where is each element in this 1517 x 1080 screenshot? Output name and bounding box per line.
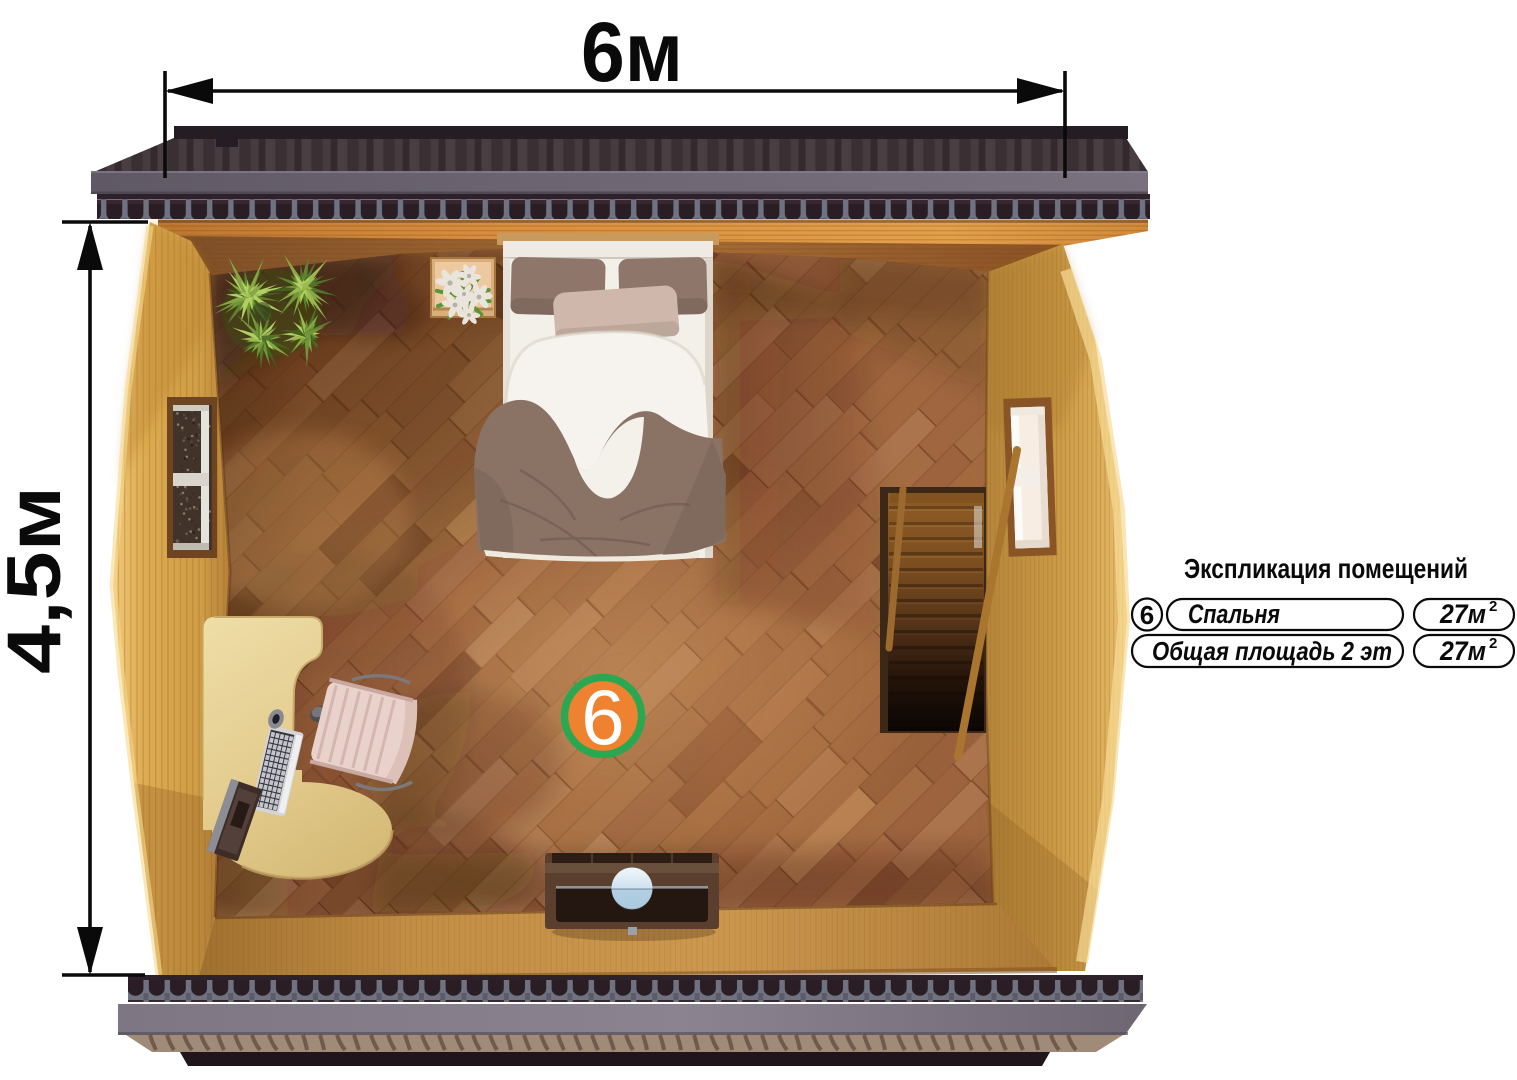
svg-text:Общая площадь 2 эт: Общая площадь 2 эт: [1152, 636, 1392, 666]
svg-text:27м: 27м: [1439, 636, 1486, 666]
svg-text:Экспликация помещений: Экспликация помещений: [1184, 553, 1468, 584]
svg-text:4,5м: 4,5м: [0, 486, 77, 674]
svg-text:27м: 27м: [1439, 599, 1486, 629]
svg-text:6: 6: [581, 673, 624, 761]
svg-text:6м: 6м: [581, 5, 683, 99]
svg-text:2: 2: [1489, 598, 1497, 615]
svg-text:6: 6: [1140, 600, 1154, 630]
svg-text:Спальня: Спальня: [1188, 599, 1280, 629]
svg-text:2: 2: [1489, 635, 1497, 652]
